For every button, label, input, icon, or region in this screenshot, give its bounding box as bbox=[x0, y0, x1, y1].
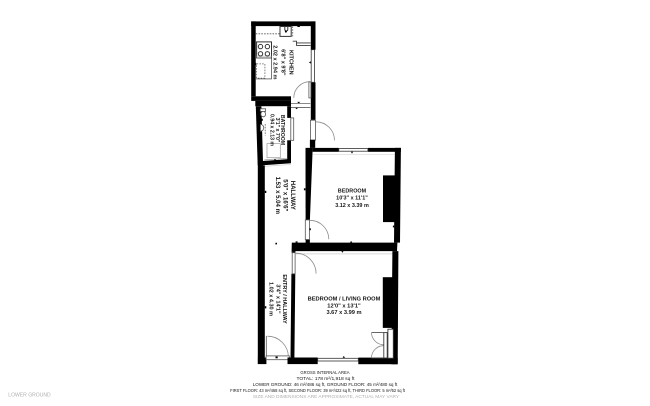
svg-text:0.94 x 2.13 m: 0.94 x 2.13 m bbox=[268, 114, 274, 146]
svg-text:KITCHEN: KITCHEN bbox=[287, 50, 293, 75]
svg-text:2.02 x 2.94 m: 2.02 x 2.94 m bbox=[272, 45, 278, 79]
svg-text:3.67 x 3.99 m: 3.67 x 3.99 m bbox=[326, 310, 361, 316]
svg-text:6'8" x 9'8": 6'8" x 9'8" bbox=[279, 49, 285, 76]
svg-text:ENTRY / HALLWAY: ENTRY / HALLWAY bbox=[281, 274, 287, 324]
svg-text:LOWER GROUND: LOWER GROUND bbox=[8, 393, 51, 399]
svg-text:1.02 x 4.30 m: 1.02 x 4.30 m bbox=[268, 282, 274, 316]
svg-text:BEDROOM: BEDROOM bbox=[338, 188, 367, 194]
svg-text:HALLWAY: HALLWAY bbox=[289, 181, 295, 210]
svg-text:GROSS INTERNAL AREA: GROSS INTERNAL AREA bbox=[300, 370, 349, 375]
svg-text:3'4" x 14'1": 3'4" x 14'1" bbox=[274, 284, 280, 314]
svg-text:12'0" x 13'1": 12'0" x 13'1" bbox=[327, 303, 361, 309]
svg-text:SIZE AND DIMENSIONS ARE APPROX: SIZE AND DIMENSIONS ARE APPROXIMATE, ACT… bbox=[253, 394, 400, 400]
svg-text:FIRST FLOOR: 43 m²/468 sq ft,: FIRST FLOOR: 43 m²/468 sq ft, SECOND FLO… bbox=[230, 388, 406, 393]
svg-text:3.12 x 3.39 m: 3.12 x 3.39 m bbox=[335, 203, 369, 209]
svg-text:1.53 x 5.04 m: 1.53 x 5.04 m bbox=[274, 177, 280, 214]
svg-text:LOWER GROUND: 46 m²/486 sq ft,: LOWER GROUND: 46 m²/486 sq ft, GROUND FL… bbox=[253, 382, 398, 387]
svg-text:10'3" x 11'1": 10'3" x 11'1" bbox=[336, 196, 368, 202]
svg-text:5'0" x 16'6": 5'0" x 16'6" bbox=[282, 179, 288, 211]
svg-text:BEDROOM / LIVING ROOM: BEDROOM / LIVING ROOM bbox=[308, 296, 381, 302]
